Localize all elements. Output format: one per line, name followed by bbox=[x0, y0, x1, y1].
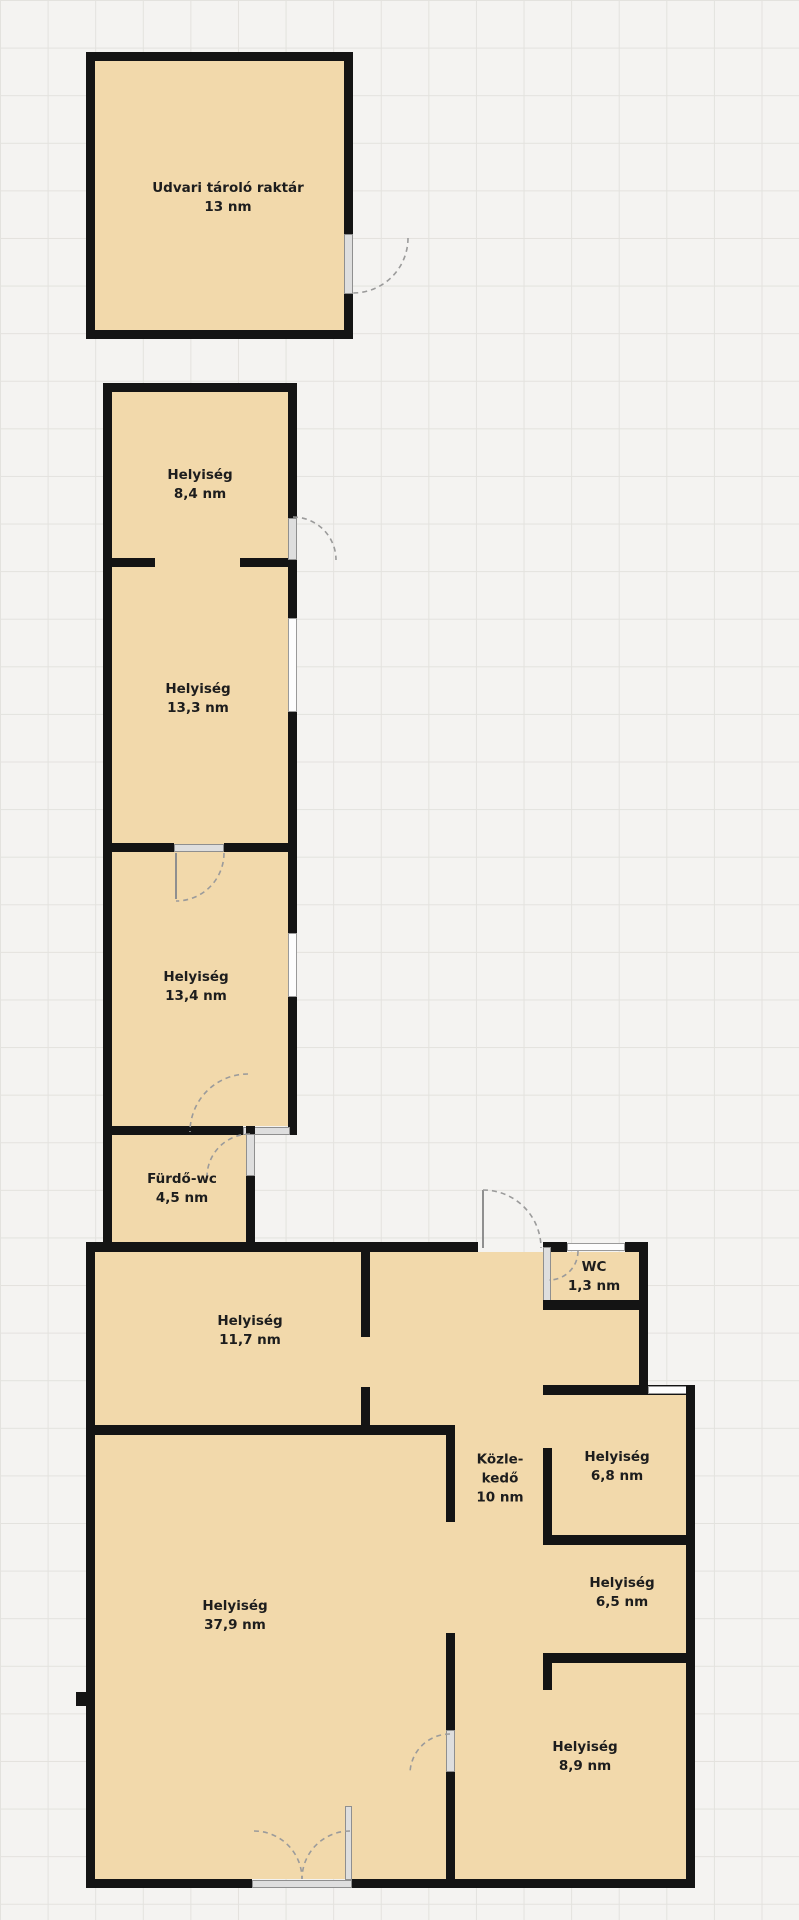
room-name: Udvari tároló raktár bbox=[152, 179, 304, 198]
room-area: 37,9 nm bbox=[202, 1616, 267, 1635]
room-label-helyiseg-8-4: Helyiség 8,4 nm bbox=[167, 466, 232, 504]
room-area: 8,4 nm bbox=[167, 485, 232, 504]
room-name: Közle- bbox=[476, 1451, 523, 1470]
room-label-helyiseg-6-8: Helyiség 6,8 nm bbox=[584, 1448, 649, 1486]
room-area: 13,4 nm bbox=[163, 987, 228, 1006]
room-name: Helyiség bbox=[589, 1574, 654, 1593]
floor-plan: Udvari tároló raktár 13 nm Helyiség 8,4 … bbox=[0, 0, 799, 1920]
room-label-udvari-tarolo-raktar: Udvari tároló raktár 13 nm bbox=[152, 179, 304, 217]
room-name: Helyiség bbox=[217, 1312, 282, 1331]
room-label-furdo-wc: Fürdő-wc 4,5 nm bbox=[147, 1170, 217, 1208]
room-name-line2: kedő bbox=[476, 1470, 523, 1489]
room-name: Helyiség bbox=[202, 1597, 267, 1616]
room-name: Helyiség bbox=[552, 1738, 617, 1757]
room-label-helyiseg-13-3: Helyiség 13,3 nm bbox=[165, 680, 230, 718]
room-area: 6,8 nm bbox=[584, 1467, 649, 1486]
room-name: WC bbox=[568, 1258, 620, 1277]
door-swing-arcs bbox=[0, 0, 799, 1920]
room-label-kozlekedo: Közle- kedő 10 nm bbox=[476, 1451, 523, 1508]
room-label-helyiseg-37-9: Helyiség 37,9 nm bbox=[202, 1597, 267, 1635]
room-area: 13 nm bbox=[152, 198, 304, 217]
room-area: 1,3 nm bbox=[568, 1277, 620, 1296]
room-label-wc: WC 1,3 nm bbox=[568, 1258, 620, 1296]
room-label-helyiseg-6-5: Helyiség 6,5 nm bbox=[589, 1574, 654, 1612]
room-area: 11,7 nm bbox=[217, 1331, 282, 1350]
room-area: 8,9 nm bbox=[552, 1757, 617, 1776]
room-area: 4,5 nm bbox=[147, 1189, 217, 1208]
room-name: Helyiség bbox=[584, 1448, 649, 1467]
room-label-helyiseg-8-9: Helyiség 8,9 nm bbox=[552, 1738, 617, 1776]
room-name: Fürdő-wc bbox=[147, 1170, 217, 1189]
room-area: 6,5 nm bbox=[589, 1593, 654, 1612]
room-label-helyiseg-11-7: Helyiség 11,7 nm bbox=[217, 1312, 282, 1350]
room-name: Helyiség bbox=[165, 680, 230, 699]
room-label-helyiseg-13-4: Helyiség 13,4 nm bbox=[163, 968, 228, 1006]
room-area: 10 nm bbox=[476, 1489, 523, 1508]
room-area: 13,3 nm bbox=[165, 699, 230, 718]
room-name: Helyiség bbox=[163, 968, 228, 987]
room-name: Helyiség bbox=[167, 466, 232, 485]
